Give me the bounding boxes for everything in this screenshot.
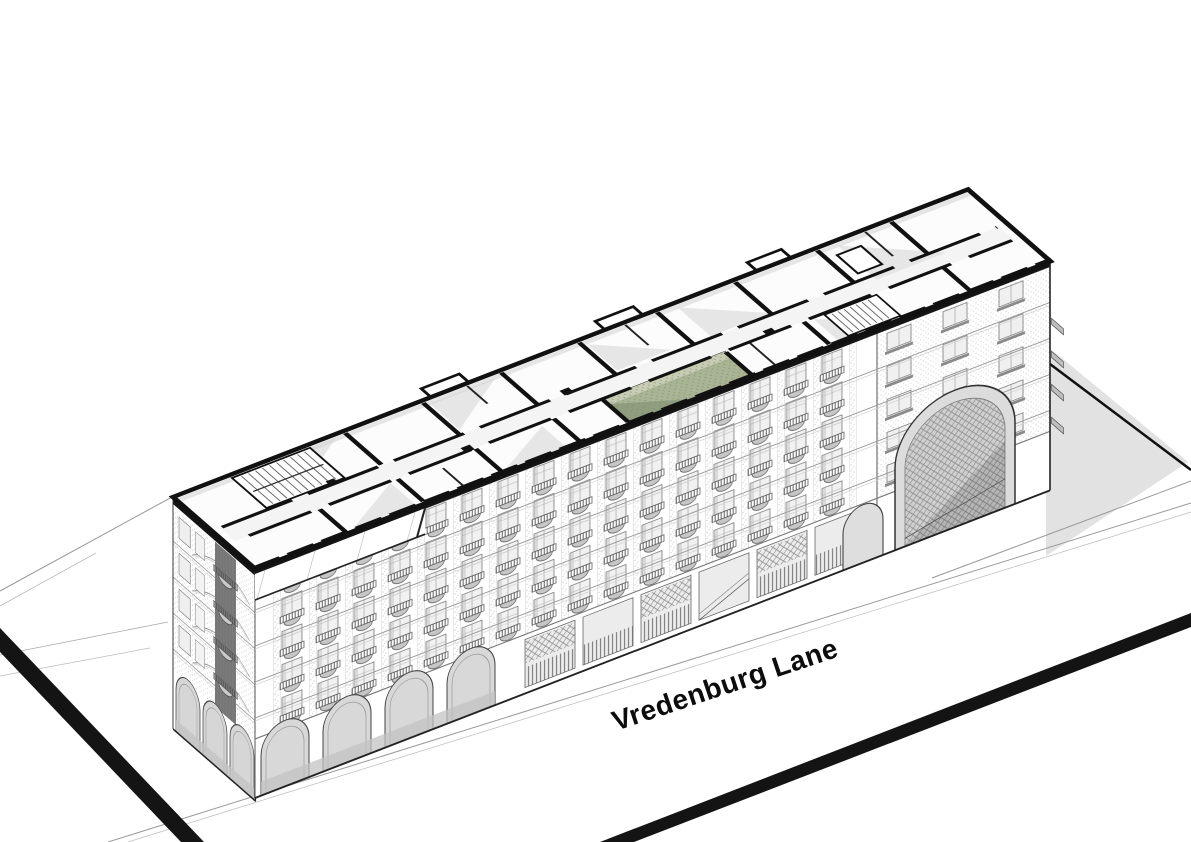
- axonometric-drawing-canvas: Vredenburg Lane: [0, 0, 1191, 842]
- architectural-drawing: Vredenburg Lane: [0, 0, 1191, 842]
- street-edge-bottom: [600, 613, 1191, 842]
- site-back-edge-2: [0, 553, 96, 606]
- site-back-edge: [0, 497, 172, 591]
- sidewalk-left-1: [0, 622, 168, 655]
